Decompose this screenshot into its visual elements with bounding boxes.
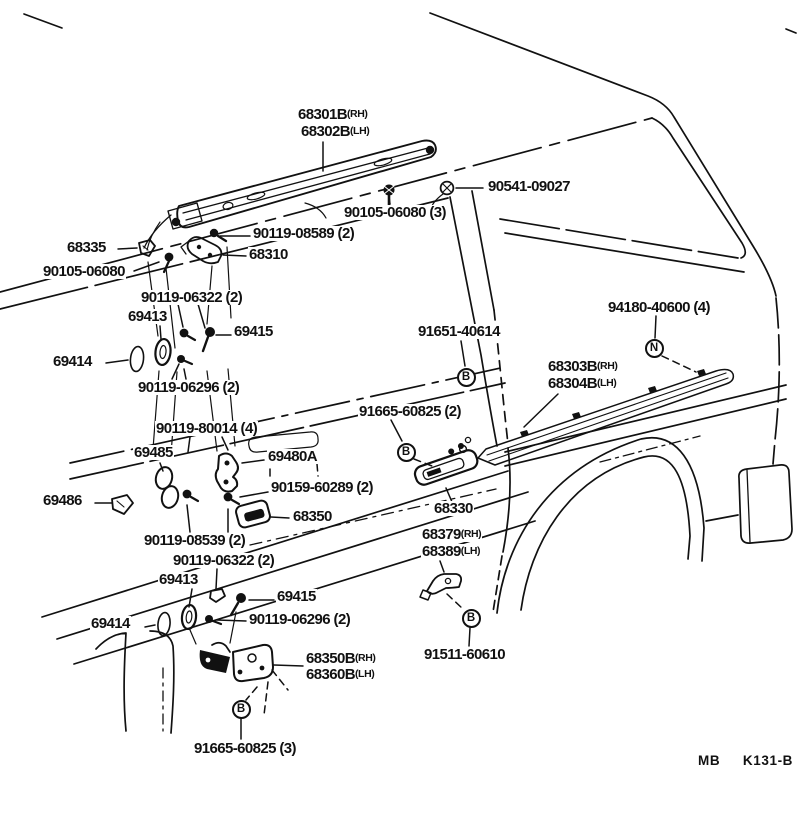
part-number: 90541-09027 — [488, 178, 570, 195]
part-callout-91665-60825-2-: 91665-60825 (2) — [358, 404, 462, 419]
part-callout-69414: 69414 — [52, 354, 93, 369]
part-callout-90119-06322-2-: 90119-06322 (2) — [140, 290, 243, 305]
part-callout-90105-06080-3-: 90105-06080 (3) — [343, 205, 447, 220]
part-callout-69480A: 69480A — [267, 449, 318, 464]
part-number: 68350B — [306, 650, 355, 667]
side-suffix: (RH) — [597, 360, 618, 372]
part-number: 90159-60289 (2) — [271, 479, 373, 496]
ref-marker-B-4: B — [232, 700, 251, 719]
part-callout-68350B: 68350B(RH) — [305, 651, 377, 666]
part-number: 90105-06080 — [43, 263, 125, 280]
part-callout-90119-80014-4-: 90119-80014 (4) — [155, 421, 258, 436]
part-number: 90119-06296 (2) — [249, 611, 350, 628]
part-callout-68330: 68330 — [433, 501, 474, 516]
ref-marker-B-2: B — [397, 443, 416, 462]
ref-marker-N-1: N — [645, 339, 664, 358]
part-number: 69485 — [134, 444, 173, 461]
part-number: 68350 — [293, 508, 332, 525]
part-number: 90119-80014 (4) — [156, 420, 257, 437]
part-callout-94180-40600-4-: 94180-40600 (4) — [607, 300, 711, 315]
part-callout-90541-09027: 90541-09027 — [487, 179, 571, 194]
part-number: 91651-40614 — [418, 323, 500, 340]
side-suffix: (RH) — [347, 108, 368, 120]
part-number: 68335 — [67, 239, 106, 256]
part-number: 69415 — [277, 588, 316, 605]
part-callout-69413: 69413 — [127, 309, 168, 324]
part-number: 90119-08589 (2) — [253, 225, 354, 242]
part-callout-90159-60289-2-: 90159-60289 (2) — [270, 480, 374, 495]
part-number: 68304B — [548, 375, 597, 392]
part-number: 68302B — [301, 123, 350, 140]
part-number: 90105-06080 (3) — [344, 204, 446, 221]
part-callout-69486: 69486 — [42, 493, 83, 508]
part-callout-68304B: 68304B(LH) — [547, 376, 617, 391]
part-number: 90119-06296 (2) — [138, 379, 239, 396]
part-number: 91665-60825 (2) — [359, 403, 461, 420]
part-callout-90119-06296-2-: 90119-06296 (2) — [137, 380, 240, 395]
part-callout-68350: 68350 — [292, 509, 333, 524]
part-callout-90119-08539-2-: 90119-08539 (2) — [143, 533, 246, 548]
side-suffix: (LH) — [461, 545, 480, 557]
parts-diagram-page: 68301B(RH)68302B(LH)90541-0902790105-060… — [0, 0, 800, 838]
part-callout-68335: 68335 — [66, 240, 107, 255]
part-number: 68301B — [298, 106, 347, 123]
side-suffix: (RH) — [461, 528, 482, 540]
part-callout-69413: 69413 — [158, 572, 199, 587]
part-callout-90119-06296-2-: 90119-06296 (2) — [248, 612, 351, 627]
part-number: 69414 — [91, 615, 130, 632]
part-callout-68302B: 68302B(LH) — [300, 124, 370, 139]
part-number: 69480A — [268, 448, 317, 465]
part-callout-68301B: 68301B(RH) — [297, 107, 369, 122]
part-number: 90119-06322 (2) — [141, 289, 242, 306]
ref-marker-B-0: B — [457, 368, 476, 387]
part-callout-90119-06322-2-: 90119-06322 (2) — [172, 553, 275, 568]
part-callout-69415: 69415 — [276, 589, 317, 604]
part-callout-90105-06080: 90105-06080 — [42, 264, 126, 279]
part-callout-90119-08589-2-: 90119-08589 (2) — [252, 226, 355, 241]
part-number: 91665-60825 (3) — [194, 740, 296, 757]
part-callout-69485: 69485 — [133, 445, 174, 460]
part-callout-68310: 68310 — [248, 247, 289, 262]
part-number: 69413 — [159, 571, 198, 588]
part-number: 69413 — [128, 308, 167, 325]
side-suffix: (LH) — [355, 668, 374, 680]
part-number: 90119-08539 (2) — [144, 532, 245, 549]
part-number: 68303B — [548, 358, 597, 375]
part-number: 68360B — [306, 666, 355, 683]
part-number: 68379 — [422, 526, 461, 543]
part-number: 68310 — [249, 246, 288, 263]
part-number: 69486 — [43, 492, 82, 509]
part-callout-68360B: 68360B(LH) — [305, 667, 375, 682]
ref-marker-B-3: B — [462, 609, 481, 628]
part-callout-68379: 68379(RH) — [421, 527, 482, 542]
part-number: 90119-06322 (2) — [173, 552, 274, 569]
side-suffix: (LH) — [597, 377, 616, 389]
part-callout-68303B: 68303B(RH) — [547, 359, 619, 374]
side-suffix: (RH) — [355, 652, 376, 664]
part-number: 94180-40600 (4) — [608, 299, 710, 316]
part-callout-69414: 69414 — [90, 616, 131, 631]
side-suffix: (LH) — [350, 125, 369, 137]
part-callout-68389: 68389(LH) — [421, 544, 481, 559]
part-callout-69415: 69415 — [233, 324, 274, 339]
part-number: 68389 — [422, 543, 461, 560]
drawing-code: MB K131-B — [698, 753, 793, 768]
part-callout-91511-60610: 91511-60610 — [423, 647, 506, 662]
part-number: 68330 — [434, 500, 473, 517]
part-number: 91511-60610 — [424, 646, 505, 663]
part-callout-91651-40614: 91651-40614 — [417, 324, 501, 339]
part-callout-91665-60825-3-: 91665-60825 (3) — [193, 741, 297, 756]
part-number: 69415 — [234, 323, 273, 340]
part-number: 69414 — [53, 353, 92, 370]
